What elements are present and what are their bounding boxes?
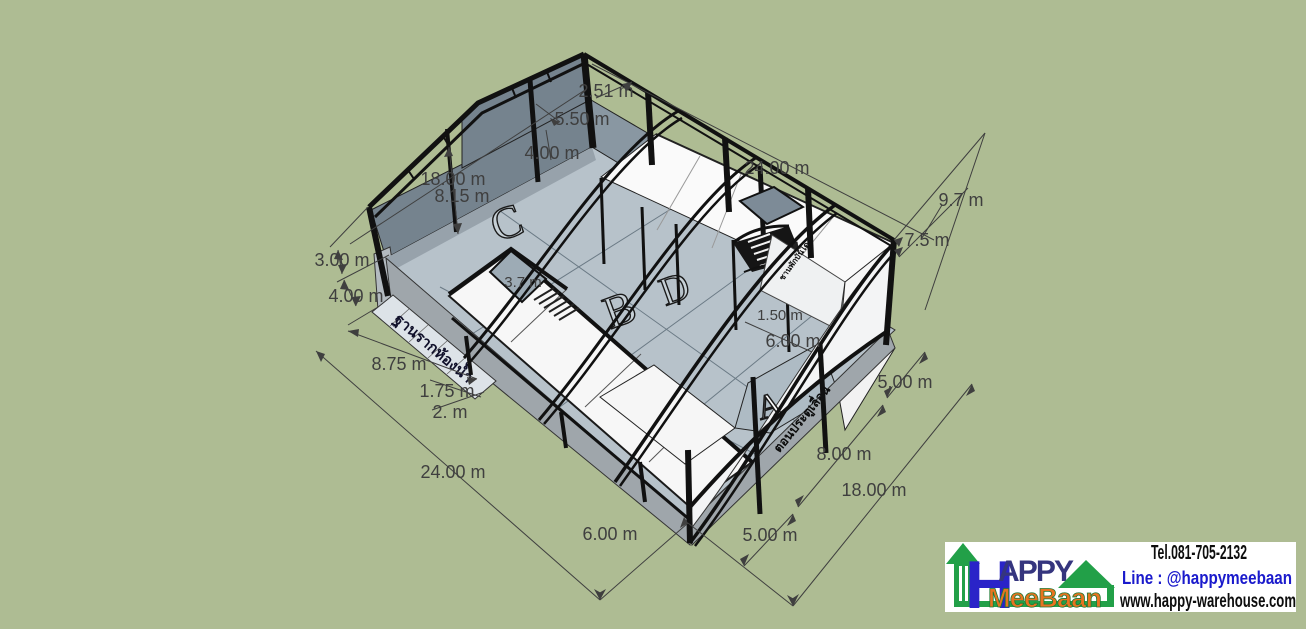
svg-text:9.7 m: 9.7 m — [938, 190, 983, 210]
svg-text:8.15 m: 8.15 m — [434, 186, 489, 206]
svg-text:4.00 m: 4.00 m — [524, 143, 579, 163]
svg-text:2. m: 2. m — [432, 402, 467, 422]
svg-text:4.00 m: 4.00 m — [328, 286, 383, 306]
svg-text:8.75 m: 8.75 m — [371, 354, 426, 374]
svg-text:5.00 m: 5.00 m — [742, 525, 797, 545]
svg-text:3.00 m: 3.00 m — [314, 250, 369, 270]
svg-text:Line : @happymeebaan: Line : @happymeebaan — [1122, 568, 1292, 588]
svg-text:1.75 m: 1.75 m — [419, 381, 474, 401]
svg-text:5.00 m: 5.00 m — [877, 372, 932, 392]
svg-text:6.00 m: 6.00 m — [582, 524, 637, 544]
svg-text:MeeBaan: MeeBaan — [988, 583, 1102, 613]
svg-text:24.00 m: 24.00 m — [744, 158, 809, 178]
svg-text:7.5 m: 7.5 m — [904, 230, 949, 250]
svg-text:Tel.081-705-2132: Tel.081-705-2132 — [1151, 542, 1247, 564]
svg-text:18.00 m: 18.00 m — [841, 480, 906, 500]
svg-text:24.00 m: 24.00 m — [420, 462, 485, 482]
svg-text:5.50 m: 5.50 m — [554, 109, 609, 129]
svg-text:6.00 m: 6.00 m — [765, 331, 820, 351]
svg-text:1.50 m: 1.50 m — [757, 307, 803, 324]
svg-text:8.00 m: 8.00 m — [816, 444, 871, 464]
svg-text:www.happy-warehouse.com: www.happy-warehouse.com — [1119, 591, 1296, 612]
svg-text:2.51 m: 2.51 m — [578, 81, 633, 101]
svg-text:3.7 m: 3.7 m — [504, 274, 542, 291]
